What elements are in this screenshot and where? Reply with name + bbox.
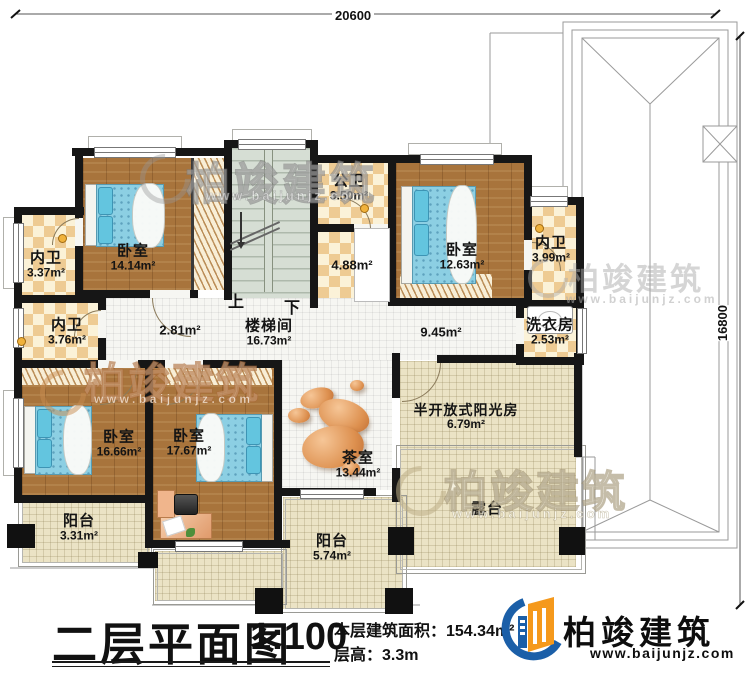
bed-pillow — [37, 439, 52, 468]
drawing-scale: 1:100 — [250, 616, 347, 659]
door-opening — [98, 360, 138, 368]
room-label-laundry: 洗衣房 2.53m² — [526, 316, 574, 347]
dimension-top: 20600 — [332, 8, 374, 23]
wall — [203, 360, 282, 368]
room-label-sunroom: 半开放式阳光房 6.79m² — [414, 402, 519, 432]
stair-label-up: 上 — [228, 288, 244, 312]
wall — [224, 148, 232, 300]
plant — [186, 528, 195, 537]
room-label-bath-b: 内卫 3.76m² — [48, 316, 86, 347]
brand-logo-icon — [482, 592, 564, 668]
window — [530, 196, 568, 207]
window — [420, 154, 494, 165]
room-label-bed1: 卧室 14.14m² — [111, 242, 156, 273]
bed-pillow — [414, 224, 429, 256]
wall — [437, 355, 517, 363]
bed-pillow — [37, 409, 52, 438]
fixture-knob — [360, 204, 369, 213]
bed-pillow — [98, 216, 113, 244]
wall — [274, 360, 282, 548]
tea-room-stone — [288, 408, 310, 423]
title-underline — [52, 661, 330, 667]
wall — [574, 353, 582, 457]
door-opening — [524, 240, 532, 270]
computer-monitor — [174, 494, 198, 515]
dimension-right: 16800 — [712, 305, 733, 341]
room-label-basin: 4.88m² — [331, 259, 372, 274]
room-label-tea: 茶室 13.44m² — [336, 449, 381, 480]
chimney-icon — [703, 126, 737, 162]
room-label-balcony1: 阳台 3.31m² — [60, 512, 98, 543]
room-label-bath-c: 内卫 3.99m² — [532, 234, 570, 265]
room-label-terrace: 露台 — [471, 500, 503, 517]
tea-room-stone — [350, 380, 364, 391]
column — [138, 552, 158, 568]
window — [577, 308, 587, 354]
stair-rail — [264, 150, 273, 292]
stair-arrow-head — [237, 242, 245, 249]
room-label-bed2: 卧室 12.63m² — [440, 241, 485, 272]
door-opening — [150, 290, 190, 298]
room-label-bath-a: 内卫 3.37m² — [27, 249, 65, 280]
column — [385, 588, 413, 614]
wall — [392, 298, 532, 306]
window — [175, 541, 243, 552]
fixture-knob — [17, 337, 26, 346]
fixture-knob — [58, 234, 67, 243]
wall — [310, 155, 400, 163]
bed-blanket — [63, 405, 92, 475]
column — [7, 524, 35, 548]
door-opening — [516, 318, 524, 344]
wall — [392, 468, 400, 502]
wall — [145, 360, 153, 548]
room-label-balcony2: 阳台 5.74m² — [313, 532, 351, 563]
bed-blanket — [132, 183, 165, 248]
stair-direction-arrow — [240, 212, 242, 242]
stair-label-down: 下 — [284, 294, 300, 318]
wall — [191, 158, 194, 290]
wardrobe-bed3 — [22, 368, 102, 385]
cabinet — [157, 490, 175, 518]
floor-plan-canvas: 20600 16800 — [0, 0, 750, 678]
door-opening — [165, 360, 203, 368]
wardrobe-bed1 — [194, 158, 224, 290]
wall — [392, 353, 400, 398]
wall — [14, 360, 98, 368]
room-label-public-bath: 公卫 3.50m² — [330, 172, 368, 203]
column — [559, 527, 585, 555]
room-label-hall: 9.45m² — [420, 326, 461, 341]
wall — [310, 148, 318, 308]
window — [238, 139, 306, 150]
room-label-bed3: 卧室 16.66m² — [97, 428, 142, 459]
bed-pillow — [246, 417, 261, 445]
column — [388, 527, 414, 555]
room-label-hall-small: 2.81m² — [159, 324, 200, 339]
window — [300, 489, 364, 499]
wall — [14, 207, 84, 215]
wall — [14, 495, 153, 503]
bed-pillow — [246, 446, 261, 474]
bed-pillow — [98, 187, 113, 215]
brand-url: www.baijunjz.com — [590, 645, 735, 661]
floor-height-note: 层高：3.3m — [334, 641, 418, 665]
window — [13, 223, 24, 283]
window — [94, 147, 176, 158]
fixture-knob — [535, 224, 544, 233]
room-label-stairwell: 楼梯间 16.73m² — [245, 317, 293, 348]
bed-pillow — [414, 190, 429, 222]
window — [13, 398, 24, 468]
wall — [524, 155, 532, 308]
room-label-bed4: 卧室 17.67m² — [167, 427, 212, 458]
